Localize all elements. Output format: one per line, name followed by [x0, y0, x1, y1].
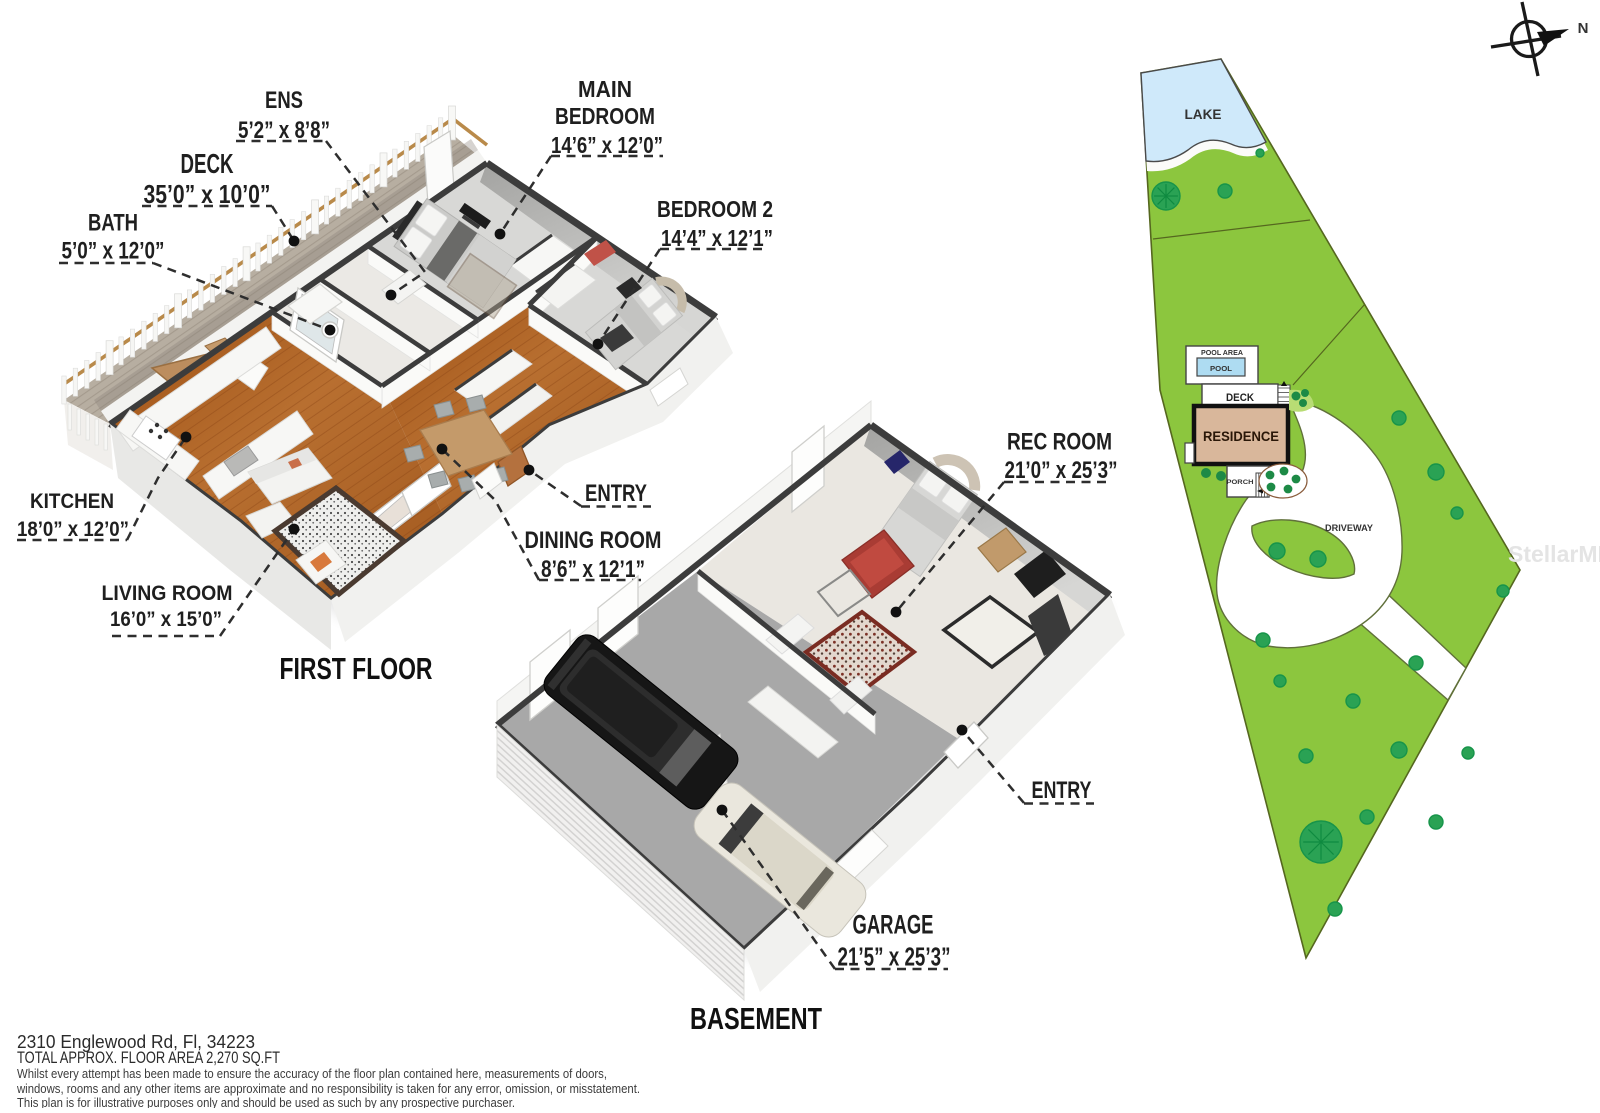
svg-text:StellarMLS: StellarMLS — [1508, 541, 1600, 567]
svg-text:5’0” x 12’0”: 5’0” x 12’0” — [62, 238, 165, 265]
svg-text:ENTRY: ENTRY — [1032, 777, 1092, 804]
svg-text:16’0” x 15’0”: 16’0” x 15’0” — [110, 608, 222, 631]
svg-text:18’0” x 12’0”: 18’0” x 12’0” — [17, 518, 129, 541]
svg-text:REC ROOM: REC ROOM — [1007, 429, 1112, 456]
svg-text:LIVING ROOM: LIVING ROOM — [102, 582, 233, 605]
svg-text:FIRST FLOOR: FIRST FLOOR — [280, 651, 433, 686]
svg-text:This plan is for illustrative: This plan is for illustrative purposes o… — [17, 1095, 515, 1108]
svg-text:ENTRY: ENTRY — [585, 480, 647, 507]
svg-text:BASEMENT: BASEMENT — [690, 1001, 822, 1036]
svg-text:RESIDENCE: RESIDENCE — [1203, 429, 1279, 444]
svg-text:DECK: DECK — [181, 148, 234, 179]
svg-text:BATH: BATH — [88, 210, 138, 237]
svg-text:14’4” x 12’1”: 14’4” x 12’1” — [661, 225, 773, 251]
svg-text:21’5” x 25’3”: 21’5” x 25’3” — [838, 944, 951, 972]
svg-text:GARAGE: GARAGE — [853, 910, 934, 940]
svg-text:LAKE: LAKE — [1185, 107, 1222, 122]
svg-text:Whilst every attempt has been: Whilst every attempt has been made to en… — [17, 1066, 607, 1081]
svg-text:35’0” x 10’0”: 35’0” x 10’0” — [144, 179, 271, 209]
svg-text:DRIVEWAY: DRIVEWAY — [1325, 523, 1374, 534]
svg-text:N: N — [1578, 20, 1589, 37]
svg-text:21’0” x 25’3”: 21’0” x 25’3” — [1005, 457, 1118, 484]
svg-text:BEDROOM 2: BEDROOM 2 — [657, 196, 773, 222]
svg-text:POOL: POOL — [1210, 364, 1232, 373]
svg-text:BEDROOM: BEDROOM — [555, 103, 655, 129]
svg-text:KITCHEN: KITCHEN — [30, 490, 114, 513]
svg-text:PORCH: PORCH — [1227, 479, 1254, 486]
svg-text:TOTAL APPROX. FLOOR AREA 2,270: TOTAL APPROX. FLOOR AREA 2,270 SQ.FT — [17, 1048, 280, 1067]
svg-text:DINING ROOM: DINING ROOM — [525, 527, 662, 554]
svg-text:windows, rooms and any other i: windows, rooms and any other items are a… — [16, 1081, 640, 1096]
svg-text:14’6” x 12’0”: 14’6” x 12’0” — [551, 132, 663, 158]
svg-text:MAIN: MAIN — [578, 76, 632, 102]
svg-text:DECK: DECK — [1226, 392, 1254, 404]
svg-text:POOL AREA: POOL AREA — [1201, 348, 1244, 357]
svg-text:ENS: ENS — [265, 87, 303, 114]
